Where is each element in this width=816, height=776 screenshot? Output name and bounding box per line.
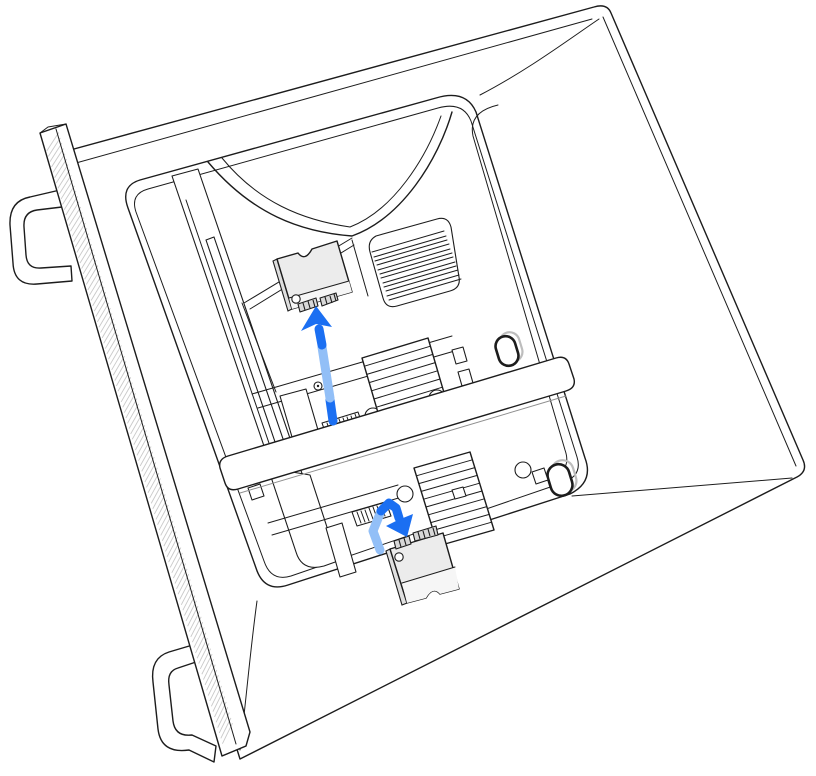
mac-pro-ssd-illustration: [0, 0, 816, 776]
standoff-lower-right: [515, 462, 531, 478]
standoff-lower-left: [397, 486, 413, 502]
board-screw-center: [317, 385, 319, 387]
removal-arrow-shaft-bottom: [330, 400, 333, 421]
removal-arrow-shaft-top: [319, 329, 322, 345]
ssd-upper-screw: [292, 295, 300, 303]
illustration-canvas: [0, 0, 816, 776]
ssd-lower-screw: [395, 553, 403, 561]
